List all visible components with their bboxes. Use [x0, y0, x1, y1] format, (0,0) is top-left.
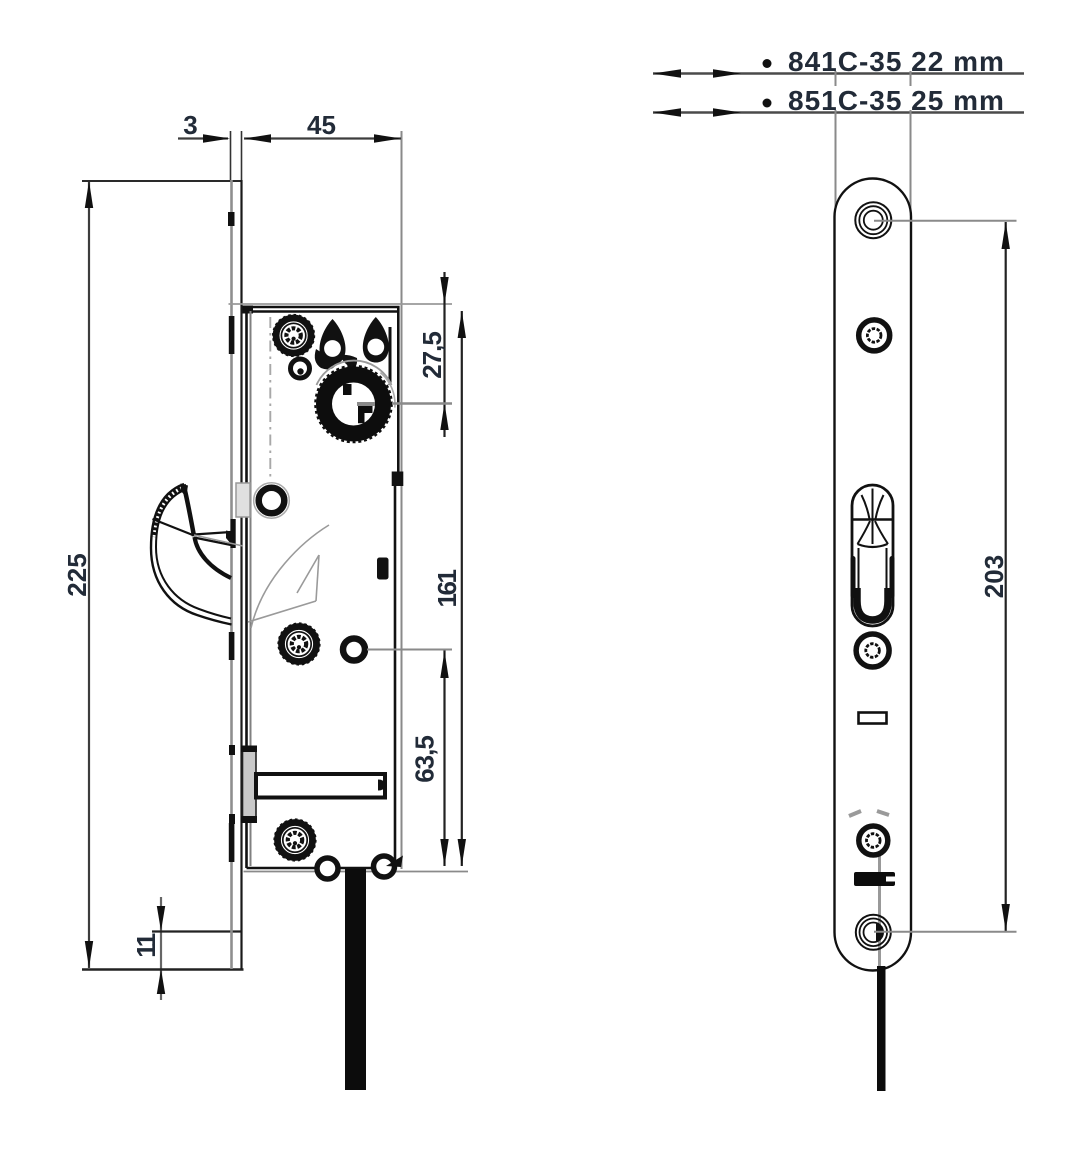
svg-text:851C-35 25 mm: 851C-35 25 mm	[788, 85, 1005, 116]
svg-text:161: 161	[432, 570, 462, 608]
svg-text:203: 203	[979, 555, 1009, 598]
svg-text:841C-35 22 mm: 841C-35 22 mm	[788, 46, 1005, 77]
svg-text:45: 45	[307, 110, 336, 140]
svg-text:3: 3	[183, 110, 197, 140]
svg-text:27,5: 27,5	[417, 332, 447, 379]
svg-text:225: 225	[62, 553, 92, 596]
svg-text:11: 11	[131, 933, 161, 958]
svg-text:63,5: 63,5	[410, 736, 440, 783]
